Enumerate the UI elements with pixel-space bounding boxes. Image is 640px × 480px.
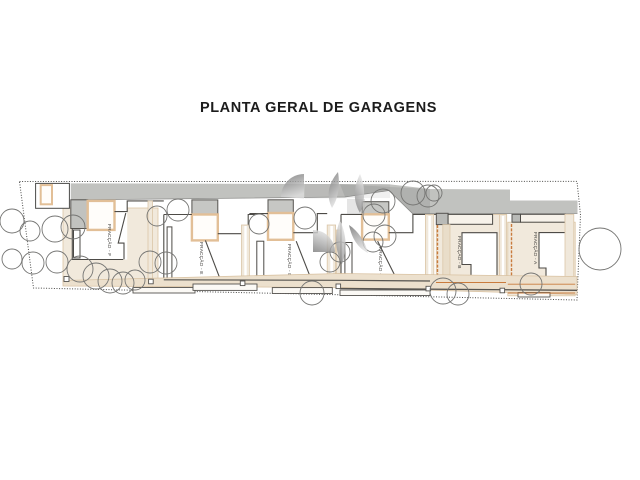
svg-text:FRACÇÃO - A: FRACÇÃO - A	[532, 232, 539, 265]
svg-text:FRACÇÃO - D: FRACÇÃO - D	[286, 244, 293, 277]
svg-text:FRACÇÃO - E: FRACÇÃO - E	[198, 242, 205, 275]
svg-text:FRACÇÃO - B: FRACÇÃO - B	[456, 236, 463, 269]
svg-text:FRACÇÃO - F: FRACÇÃO - F	[106, 224, 113, 256]
